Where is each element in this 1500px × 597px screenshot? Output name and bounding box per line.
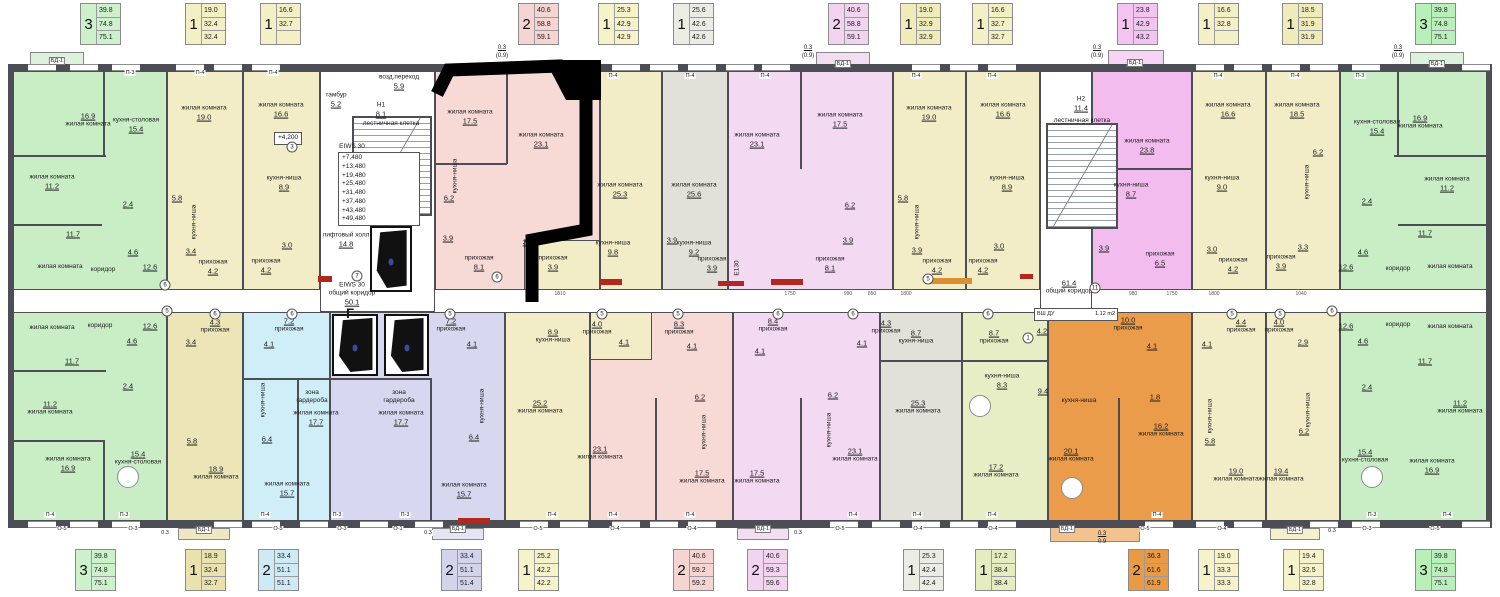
door-marker: 6 [160, 280, 171, 291]
room-label: 4.1 [1147, 342, 1157, 351]
room-label: 2.4 [123, 382, 133, 391]
room-label: 6.2 [828, 391, 838, 400]
badge-areas: 33.451.151.1 [274, 550, 298, 590]
badge-room-count: 1 [186, 4, 201, 44]
facade-marker: БД-1 [1059, 525, 1075, 533]
room-label: жилая комната15.7 [264, 481, 309, 498]
room-label: 5.8 [187, 437, 197, 446]
room-label: 6.2 [444, 194, 454, 203]
room-label: жилая комната23.8 [1124, 138, 1169, 155]
room-label: прихожая3.9 [1267, 254, 1296, 271]
wall-partition [506, 71, 508, 164]
facade-marker: О-4 [609, 526, 620, 532]
apartment-badge[interactable]: 125.342.942.9 [598, 3, 639, 45]
apartment-badge[interactable]: 339.874.875.1 [75, 549, 116, 591]
room-label: 16.9жилая комната [65, 112, 110, 129]
room-label: 11.2жилая комната [27, 400, 72, 417]
room-label: кухня-ниша9.8 [596, 240, 631, 257]
corridor-dimension: 1800 [900, 291, 911, 297]
vent-shaft-box: ВШ ДУ1.12 m2 [1034, 308, 1118, 321]
dimension-label: 0.3(0.9) [1091, 45, 1103, 60]
room-label: 12.6 [143, 322, 158, 331]
apartment-badge[interactable]: 123.842.943.2 [1117, 3, 1158, 45]
badge-areas: 25.642.642.6 [689, 4, 713, 44]
badge-room-count: 1 [261, 4, 276, 44]
column-marker: Г [346, 305, 354, 321]
room-label: 6.2 [695, 393, 705, 402]
apartment-badge[interactable]: 117.238.438.4 [975, 549, 1016, 591]
badge-areas: 39.874.875.1 [96, 4, 120, 44]
apartment-badge[interactable]: 118.932.432.7 [185, 549, 226, 591]
apartment-badge[interactable]: 125.242.242.2 [518, 549, 559, 591]
room-label: 3.4 [186, 247, 196, 256]
room-label: 3.9 [523, 238, 533, 247]
corridor-dimension: 1800 [1208, 291, 1219, 297]
room-label: лестничная клетка [363, 120, 419, 128]
apartment-badge[interactable]: 119.033.333.3 [1198, 549, 1239, 591]
room-label: лифтовый холл14.8 [323, 232, 370, 249]
corridor-equipment [600, 279, 622, 285]
window [1310, 64, 1338, 71]
room-label: 4.1 [687, 342, 697, 351]
facade-marker: П-4 [1442, 512, 1453, 518]
room-label: возд.переход5.9 [379, 74, 419, 91]
door-marker: 6 [287, 309, 298, 320]
window [688, 64, 716, 71]
facade-marker: БД-1 [835, 60, 851, 68]
room-label: кухня-ниша8.9 [267, 175, 302, 192]
corridor-dimension: 990 [844, 291, 852, 297]
facade-marker: БД-1 [755, 525, 771, 533]
apartment-badge[interactable]: 118.531.931.9 [1282, 3, 1323, 45]
room-label: кухня-ниша8.3 [985, 373, 1020, 390]
apartment-badge[interactable]: 240.658.859.1 [828, 3, 869, 45]
window [1462, 521, 1490, 528]
facade-marker: 0.3 [1327, 528, 1337, 534]
badge-areas: 19.032.432.4 [201, 4, 225, 44]
door-marker: 7 [352, 271, 363, 282]
apartment-badge[interactable]: 116.632.732.7 [972, 3, 1013, 45]
round-table [117, 466, 139, 488]
facade-marker: П-4 [911, 73, 922, 79]
apt-2r-violet-top[interactable] [728, 71, 893, 290]
room-label: 9.4 [1038, 387, 1048, 396]
facade-marker: П-4 [1152, 512, 1163, 518]
facade-marker: О-5 [532, 526, 543, 532]
room-label: прихожая4.2 [1219, 257, 1248, 274]
wall-partition [1394, 155, 1490, 157]
room-label: 8.7прихожая [980, 329, 1009, 346]
facade-marker: О-4 [1216, 526, 1227, 532]
facade-marker: БД-1 [196, 526, 212, 534]
room-label: жилая комната19.0 [906, 105, 951, 122]
badge-areas: 25.242.242.2 [534, 550, 558, 590]
facade-marker: О-5 [834, 526, 845, 532]
room-label: жилая комната19.0 [181, 105, 226, 122]
room-label: жилая комната23.1 [734, 132, 779, 149]
facade-marker: П-4 [685, 73, 696, 79]
room-label: 3.9 [912, 246, 922, 255]
room-label: 4.0прихожая [583, 320, 612, 337]
corridor-dimension: 1810 [554, 291, 565, 297]
corridor-dimension: 1750 [784, 291, 795, 297]
room-label: прихожая6.5 [1146, 251, 1175, 268]
room-label: 19.0жилая комната [1213, 467, 1258, 484]
door-marker: 11 [1090, 283, 1101, 294]
room-label: кухня-столовая15.4 [1354, 119, 1400, 136]
room-label: 3.0 [282, 241, 292, 250]
door-marker: 5 [1275, 309, 1286, 320]
facade-marker: П-3 [332, 512, 343, 518]
room-label: 6.2 [1299, 427, 1309, 436]
room-label: 11.2жилая комната [1437, 399, 1482, 416]
window [1196, 64, 1224, 71]
corridor-equipment [458, 518, 490, 523]
facade-marker: О-5 [1139, 526, 1150, 532]
apartment-badge[interactable]: 119.032.432.4 [185, 3, 226, 45]
floor-plan: +7,480+13,480+19,480+25,480+31,480+37,48… [0, 0, 1500, 597]
room-label: 4.1 [857, 339, 867, 348]
room-label: 11.7 [1418, 229, 1432, 238]
room-label: прихожая8.1 [465, 255, 494, 272]
room-label: кухня-столовая15.4 [113, 117, 159, 134]
apartment-badge[interactable]: 240.659.259.2 [673, 549, 714, 591]
room-label: жилая комната16.6 [258, 102, 303, 119]
room-label-vertical: кухня-ниша [1305, 393, 1312, 428]
facade-marker: О-3 [336, 526, 347, 532]
apartment-badge[interactable]: 339.874.875.1 [1415, 549, 1456, 591]
badge-areas: 17.238.438.4 [991, 550, 1015, 590]
room-label: прихожая4.2 [969, 258, 998, 275]
window [1234, 64, 1262, 71]
door-marker: 6 [210, 309, 221, 320]
room-label: 4.0прихожая [1265, 318, 1294, 335]
wall-partition [962, 360, 1048, 362]
room-label: 3.9 [1099, 244, 1109, 253]
apt-1r-25-top[interactable] [600, 71, 662, 290]
room-label: прихожая4.2 [252, 258, 281, 275]
room-label: жилая комната11.2 [1424, 176, 1469, 193]
facade-marker: 0.3 [423, 530, 433, 536]
room-label: 5.8 [898, 194, 908, 203]
badge-room-count: 1 [976, 550, 991, 590]
badge-areas: 19.032.932.9 [916, 4, 940, 44]
badge-areas: 33.451.151.4 [457, 550, 481, 590]
room-label: 3.9 [843, 236, 853, 245]
badge-room-count: 2 [748, 550, 763, 590]
room-label: коридор [88, 322, 113, 330]
apartment-badge[interactable]: 125.342.442.4 [903, 549, 944, 591]
facade-marker: П-4 [268, 70, 279, 76]
apartment-badge[interactable]: 233.451.151.1 [258, 549, 299, 591]
wall-partition [800, 71, 802, 169]
apartment-badge[interactable]: 116.632.8 [1198, 3, 1239, 45]
facade-marker: П-4 [987, 73, 998, 79]
facade-marker: БД-1 [1429, 60, 1445, 68]
apartment-badge[interactable]: 119.032.932.9 [900, 3, 941, 45]
badge-areas: 16.632.7 [276, 4, 300, 44]
room-label: 4.3прихожая [201, 318, 230, 335]
room-label-vertical: кухня-ниша [1304, 165, 1311, 200]
badge-areas: 40.658.859.1 [844, 4, 868, 44]
badge-room-count: 3 [1416, 550, 1431, 590]
facade-marker: О-3 [1361, 526, 1372, 532]
badge-room-count: 3 [81, 4, 96, 44]
round-table [1361, 466, 1383, 488]
room-label: 4.1 [619, 338, 629, 347]
building-wall [8, 64, 14, 528]
wall-partition [10, 155, 106, 157]
apartment-badge[interactable]: 339.874.875.1 [1415, 3, 1456, 45]
building-wall [1486, 64, 1492, 528]
facade-marker: О-5 [272, 526, 283, 532]
facade-marker: П-3 [400, 512, 411, 518]
badge-room-count: 3 [1416, 4, 1431, 44]
room-label: 8.9кухня-ниша [536, 328, 571, 345]
room-label: 1.8 [1150, 393, 1160, 402]
round-table [969, 395, 991, 417]
facade-marker: О-4 [987, 526, 998, 532]
room-label: кухня-ниша9.2 [677, 240, 712, 257]
elevator [384, 314, 429, 376]
door-marker: 5 [597, 309, 608, 320]
apartment-badge[interactable]: 125.642.642.6 [673, 3, 714, 45]
room-label: 4.6 [1358, 337, 1368, 346]
corridor-dimension: 980 [1129, 291, 1137, 297]
window [70, 521, 98, 528]
badge-areas: 40.659.359.6 [763, 550, 787, 590]
window [1462, 64, 1490, 71]
window [1310, 521, 1338, 528]
apartment-badge[interactable]: 339.874.875.1 [80, 3, 121, 45]
corridor-equipment [1020, 274, 1033, 279]
badge-room-count: 2 [1129, 550, 1144, 590]
wall-partition [10, 224, 102, 226]
badge-room-count: 1 [1283, 4, 1298, 44]
room-label: 3.0 [994, 242, 1004, 251]
facade-marker: П-4 [685, 512, 696, 518]
room-label: 3.0 [1207, 245, 1217, 254]
room-label: 18.9жилая комната [193, 465, 238, 482]
badge-room-count: 1 [904, 550, 919, 590]
room-label: лестничная клетка [1054, 117, 1110, 125]
room-label: коридор [1386, 265, 1411, 273]
badge-areas: 18.932.432.7 [201, 550, 225, 590]
badge-room-count: 1 [1284, 550, 1299, 590]
window [300, 521, 328, 528]
door-marker: 5 [1227, 309, 1238, 320]
elevator [332, 314, 378, 376]
facade-marker: П-4 [1213, 73, 1224, 79]
wall-partition [880, 360, 962, 362]
room-label: 3.9 [667, 236, 677, 245]
apt-3r-bottom-left[interactable] [10, 312, 167, 521]
room-label: 11.7 [66, 230, 80, 239]
room-label: H211.4 [1074, 96, 1088, 113]
elevator-icon [404, 344, 409, 351]
room-label: 25.3жилая комната [895, 399, 940, 416]
door-marker: 3 [287, 142, 298, 153]
apartment-badge[interactable]: 240.658.859.1 [518, 3, 559, 45]
apartment-badge[interactable]: 240.659.359.6 [747, 549, 788, 591]
wall-partition [800, 398, 802, 521]
door-marker: 5 [673, 309, 684, 320]
facade-marker: БД-1 [49, 57, 65, 65]
room-label: 19.4жилая комната [1258, 467, 1303, 484]
facade-marker: П-3 [1367, 512, 1378, 518]
facade-marker: П-4 [260, 512, 271, 518]
facade-marker: БД-1 [450, 525, 466, 533]
room-label: прихожая8.1 [816, 256, 845, 273]
badge-room-count: 1 [674, 4, 689, 44]
room-label: жилая комната16.9 [45, 456, 90, 473]
room-label: жилая комната [37, 263, 82, 271]
staircase [1046, 123, 1118, 229]
apt-1r-18-9-bottom[interactable] [167, 312, 243, 521]
badge-room-count: 1 [1199, 4, 1214, 44]
window [415, 521, 443, 528]
room-label: 4.1 [1202, 340, 1212, 349]
room-label: 3.4 [186, 338, 196, 347]
room-label: 17.5жилая комната [679, 469, 724, 486]
room-label-vertical: кухня-ниша [452, 159, 459, 194]
badge-areas: 36.361.661.9 [1144, 550, 1168, 590]
wall-partition [430, 380, 432, 521]
facade-marker: П-4 [608, 73, 619, 79]
room-label: кухня-ниша8.7 [1114, 182, 1149, 199]
facade-marker: П-4 [195, 70, 206, 76]
room-label-vertical: кухня-ниша [191, 205, 198, 240]
room-label: коридор [1386, 321, 1411, 329]
facade-marker: П-4 [760, 73, 771, 79]
room-label: 17.2жилая комната [973, 463, 1018, 480]
facade-marker: 0.3 [160, 530, 170, 536]
apartment-badge[interactable]: 116.632.7 [260, 3, 301, 45]
room-label: 10.0прихожая [1114, 316, 1143, 333]
room-label: 6.2 [1313, 148, 1323, 157]
room-label: 23.1жилая комната [577, 445, 622, 462]
corridor-dimension: 1750 [1166, 291, 1177, 297]
room-label: 4.1 [264, 340, 274, 349]
wall-partition [10, 370, 106, 372]
apartment-badge[interactable]: 233.451.151.4 [441, 549, 482, 591]
room-label: тамбур5.2 [325, 92, 346, 109]
facade-marker: П-4 [848, 512, 859, 518]
room-label: 8.7кухня-ниша [899, 329, 934, 346]
dimension-label: 0.3(0.9) [1392, 45, 1404, 60]
room-label: 5.8 [1205, 437, 1215, 446]
window [214, 64, 242, 71]
room-label: 25.2жилая комната [517, 399, 562, 416]
room-label: жилая комната17.7 [293, 410, 338, 427]
facade-marker: БД-1 [1127, 59, 1143, 67]
wall-partition [655, 398, 657, 521]
wall-partition [1398, 224, 1490, 226]
badge-areas: 25.342.442.4 [919, 550, 943, 590]
room-label-vertical: кухня-ниша [479, 389, 486, 424]
elevator-icon [353, 344, 358, 351]
window [612, 64, 640, 71]
badge-room-count: 2 [829, 4, 844, 44]
room-label: 61.4общий коридор [1046, 279, 1093, 296]
room-label: 12.6 [1339, 263, 1354, 272]
window [360, 521, 388, 528]
badge-areas: 23.842.943.2 [1133, 4, 1157, 44]
door-marker: 6 [773, 309, 784, 320]
badge-areas: 18.531.931.9 [1298, 4, 1322, 44]
window [872, 521, 900, 528]
room-label: жилая комната17.5 [817, 112, 862, 129]
window [988, 64, 1016, 71]
badge-areas: 16.632.8 [1214, 4, 1238, 44]
window [28, 64, 56, 71]
window [1352, 64, 1380, 71]
room-label: 4.1 [755, 347, 765, 356]
window [650, 521, 678, 528]
wall-partition [243, 378, 330, 380]
room-label: коридор [91, 266, 116, 274]
room-label: жилая комната11.2 [29, 174, 74, 191]
door-marker: 6 [1327, 306, 1338, 317]
badge-room-count: 2 [674, 550, 689, 590]
apartment-badge[interactable]: 236.361.661.9 [1128, 549, 1169, 591]
window [214, 521, 242, 528]
facade-marker: О-5 [56, 526, 67, 532]
room-label: 4.6 [1358, 248, 1368, 257]
door-marker: 5 [162, 306, 173, 317]
badge-room-count: 1 [901, 4, 916, 44]
apartment-badge[interactable]: 119.432.532.8 [1283, 549, 1324, 591]
badge-room-count: 1 [1199, 550, 1214, 590]
room-label: 2.4 [1362, 383, 1372, 392]
badge-areas: 16.632.732.7 [988, 4, 1012, 44]
badge-areas: 40.659.259.2 [689, 550, 713, 590]
door-marker: 6 [983, 309, 994, 320]
window [560, 521, 588, 528]
room-label: 2.4 [1362, 197, 1372, 206]
room-label: прихожая4.2 [923, 258, 952, 275]
room-label: прихожая3.9 [539, 255, 568, 272]
room-label: 15.4кухня-столовая [1342, 448, 1388, 465]
facade-marker: О-4 [912, 526, 923, 532]
room-label: 4.6 [128, 248, 138, 257]
floor-levels-box: +7,480+13,480+19,480+25,480+31,480+37,48… [338, 152, 420, 226]
facade-marker: П-4 [608, 512, 619, 518]
wall-partition [10, 440, 105, 442]
facade-marker: О-3 [459, 64, 470, 70]
room-label-vertical: кухня-ниша [1207, 399, 1214, 434]
room-label: 12.6 [1339, 322, 1354, 331]
room-label: 3.9 [443, 234, 453, 243]
round-table [1061, 477, 1083, 499]
badge-areas: 19.033.333.3 [1214, 550, 1238, 590]
room-label: 11.7 [1418, 357, 1432, 366]
room-label: жилая комната25.6 [671, 182, 716, 199]
room-label: 4.1 [467, 340, 477, 349]
room-label: 4.3прихожая [872, 319, 901, 336]
window [1234, 521, 1262, 528]
badge-room-count: 1 [973, 4, 988, 44]
room-label: жилая комната15.7 [441, 482, 486, 499]
room-label: H18.1 [376, 102, 386, 119]
facade-marker: П-4 [547, 512, 558, 518]
room-label: прихожая4.2 [199, 259, 228, 276]
room-label-vertical: кухня-ниша [701, 415, 708, 450]
room-label: жилая комната17.7 [378, 410, 423, 427]
badge-room-count: 1 [1118, 4, 1133, 44]
corridor-equipment [718, 281, 744, 286]
wall-partition [330, 378, 432, 380]
